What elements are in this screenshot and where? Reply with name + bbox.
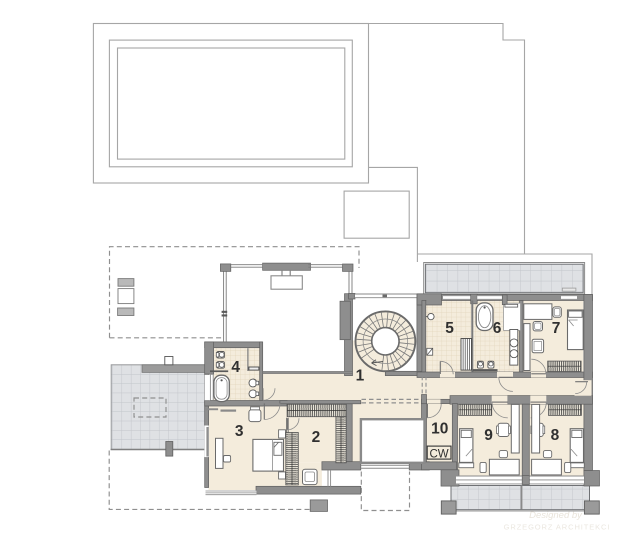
svg-text:7: 7 bbox=[552, 320, 561, 337]
svg-text:CW: CW bbox=[430, 448, 449, 460]
svg-text:9: 9 bbox=[484, 427, 493, 444]
svg-text:4: 4 bbox=[231, 359, 240, 376]
svg-text:2: 2 bbox=[312, 429, 321, 446]
svg-text:3: 3 bbox=[235, 423, 244, 440]
svg-text:Designed by: Designed by bbox=[529, 510, 583, 521]
svg-text:6: 6 bbox=[493, 320, 502, 337]
svg-text:GRZEGORZ ARCHITEKCI: GRZEGORZ ARCHITEKCI bbox=[504, 523, 611, 532]
svg-text:10: 10 bbox=[431, 421, 448, 438]
svg-text:5: 5 bbox=[445, 320, 454, 337]
svg-text:1: 1 bbox=[356, 368, 365, 385]
svg-text:8: 8 bbox=[551, 427, 560, 444]
